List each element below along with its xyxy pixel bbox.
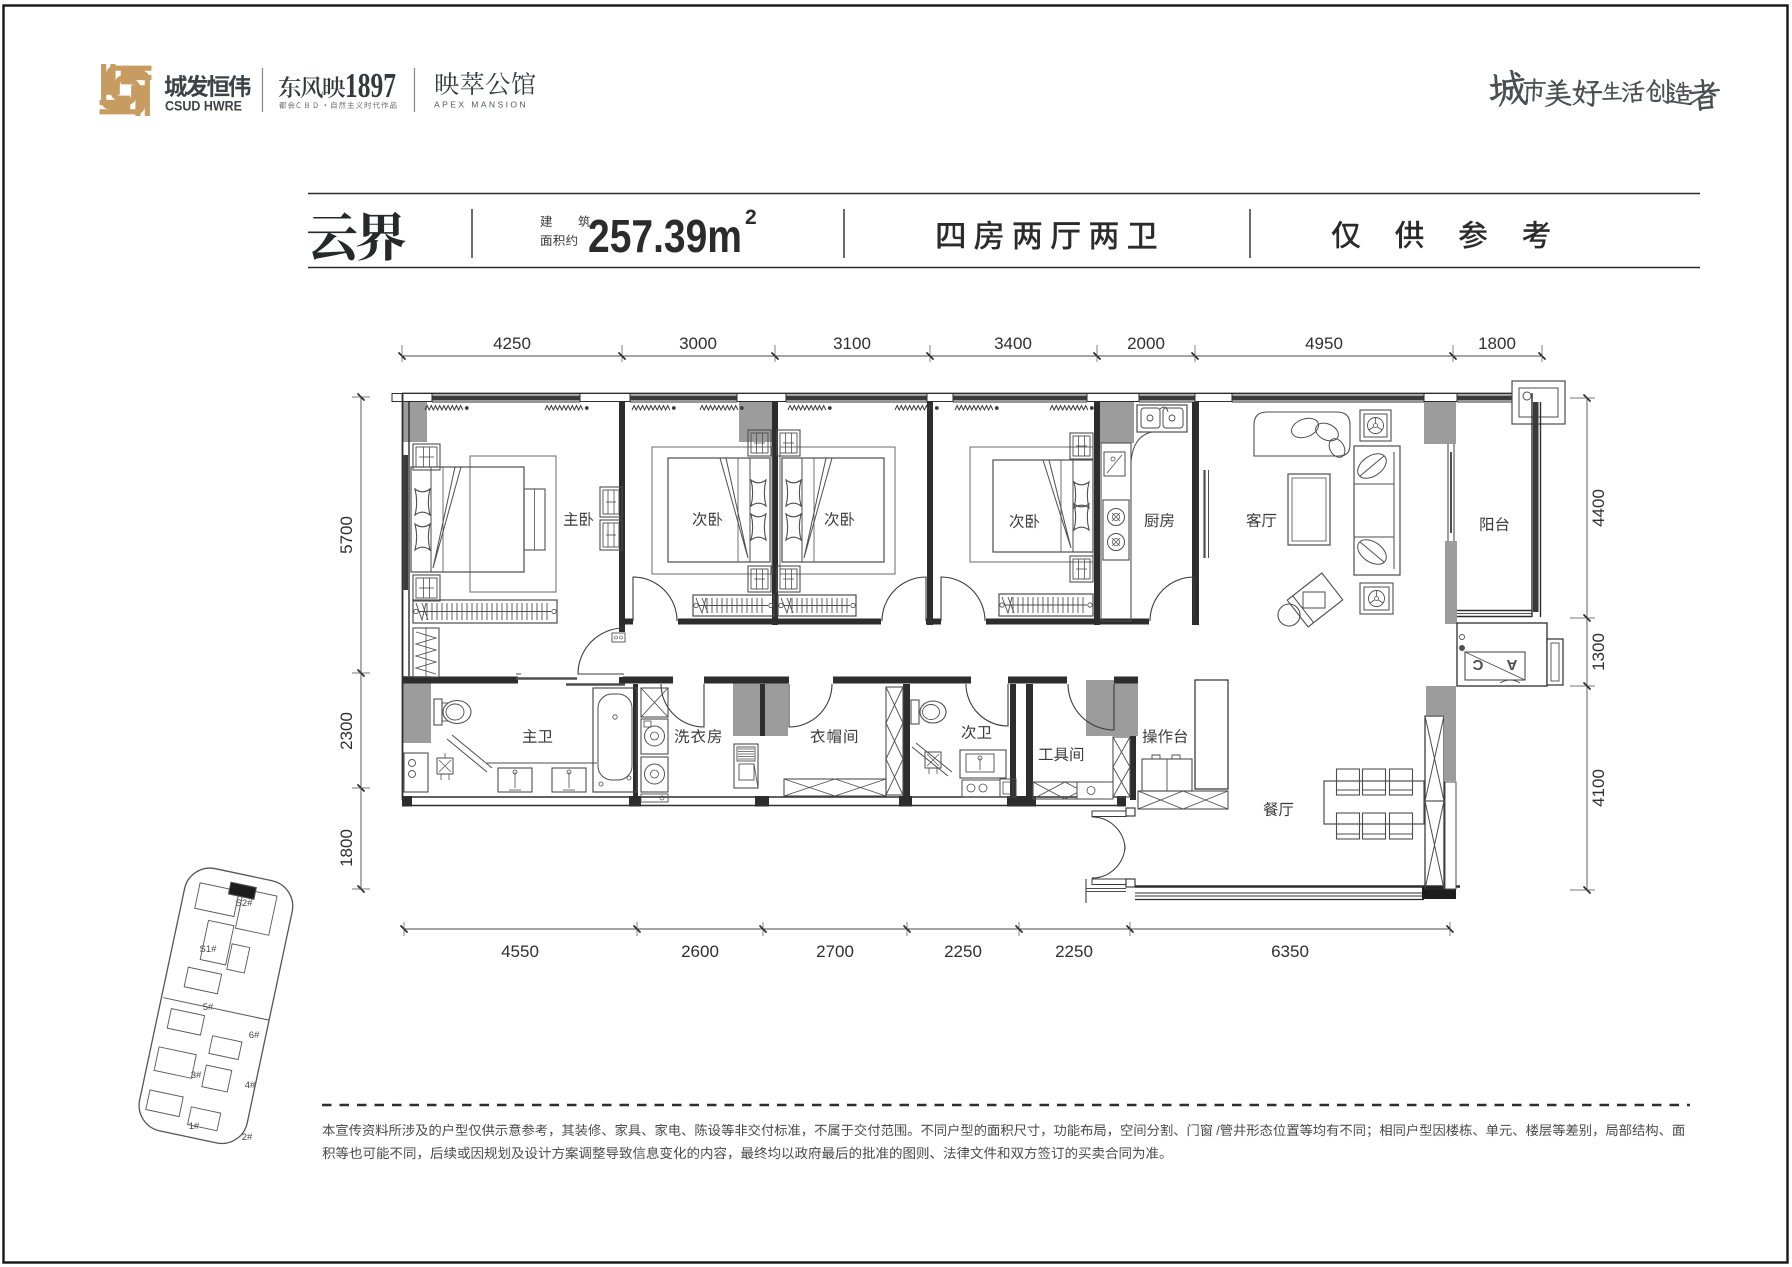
svg-text:2000: 2000 [1127, 334, 1165, 353]
svg-text:3000: 3000 [679, 334, 717, 353]
svg-text:2250: 2250 [1055, 942, 1093, 961]
svg-text:4#: 4# [245, 1080, 256, 1091]
svg-text:2250: 2250 [944, 942, 982, 961]
svg-text:6#: 6# [249, 1030, 260, 1041]
svg-text:257.39m: 257.39m [588, 210, 742, 262]
svg-text:5#: 5# [203, 1002, 214, 1013]
svg-text:C: C [1472, 656, 1483, 673]
svg-text:6350: 6350 [1271, 942, 1309, 961]
svg-text:1800: 1800 [1478, 334, 1516, 353]
svg-text:4550: 4550 [501, 942, 539, 961]
svg-text:/: / [1216, 1123, 1220, 1138]
svg-text:1300: 1300 [1589, 633, 1608, 671]
svg-text:1#: 1# [189, 1121, 200, 1132]
svg-text:S1#: S1# [200, 944, 218, 955]
svg-text:5700: 5700 [337, 516, 356, 554]
svg-text:3100: 3100 [833, 334, 871, 353]
svg-text:A: A [1506, 656, 1517, 673]
svg-text:2: 2 [745, 206, 757, 229]
svg-text:2300: 2300 [337, 712, 356, 750]
svg-text:3400: 3400 [994, 334, 1032, 353]
svg-text:3#: 3# [191, 1070, 202, 1081]
svg-text:CSUD HWRE: CSUD HWRE [165, 99, 242, 114]
svg-text:4950: 4950 [1305, 334, 1343, 353]
svg-text:4400: 4400 [1589, 489, 1608, 527]
svg-text:1800: 1800 [337, 829, 356, 867]
svg-text:4250: 4250 [493, 334, 531, 353]
svg-text:4100: 4100 [1589, 769, 1608, 807]
svg-text:2#: 2# [242, 1132, 253, 1143]
svg-text:S2#: S2# [236, 898, 254, 909]
svg-text:APEX MANSION: APEX MANSION [434, 100, 528, 110]
svg-text:2700: 2700 [816, 942, 854, 961]
svg-text:1897: 1897 [345, 66, 396, 105]
svg-text:2600: 2600 [681, 942, 719, 961]
